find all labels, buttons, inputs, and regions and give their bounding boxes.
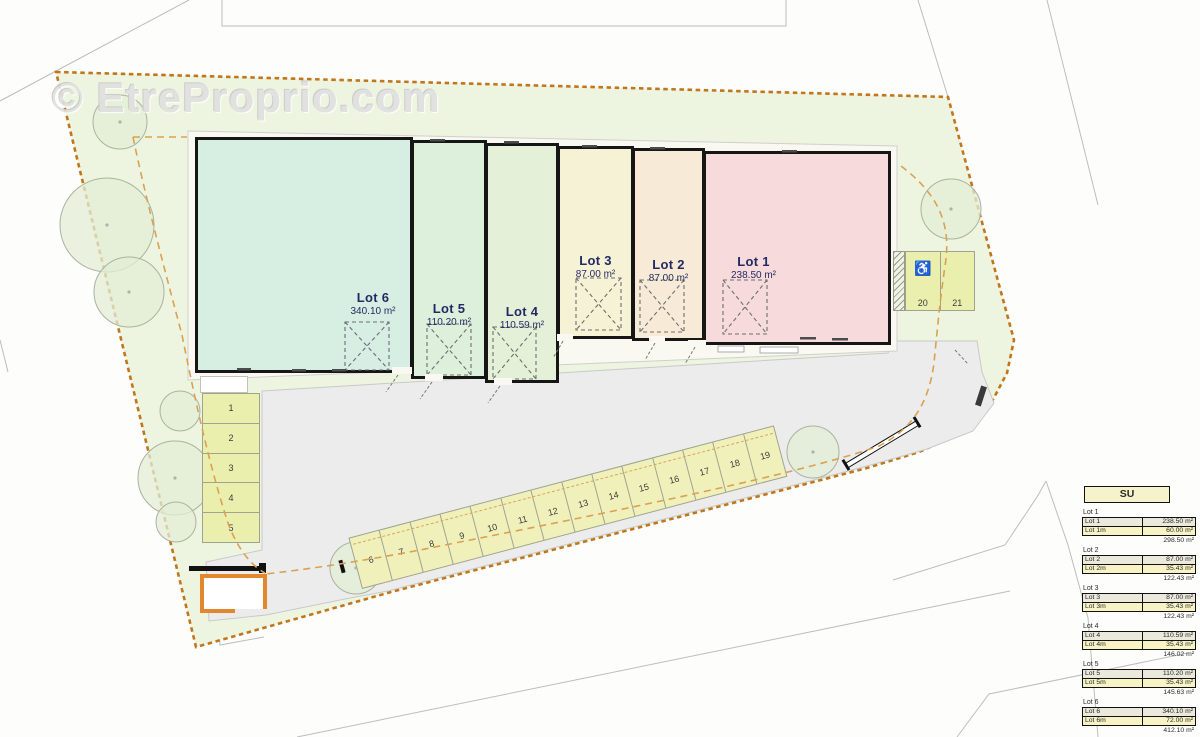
su-group-subtotal: 145.63 m²	[1082, 689, 1196, 697]
lot-void-box	[722, 279, 768, 335]
lot-2: Lot 2 87.00 m²	[632, 148, 705, 341]
lot-label: Lot 3	[560, 253, 631, 268]
su-row-value: 87.00 m²	[1143, 594, 1195, 602]
lot-void-box	[344, 321, 390, 371]
su-group: Lot 1Lot 1238.50 m²Lot 1m60.00 m²298.50 …	[1082, 509, 1196, 545]
su-row-value: 35.43 m²	[1143, 565, 1195, 573]
gate-post	[259, 563, 266, 573]
parking-space-5: 5	[203, 512, 259, 542]
su-table-title: SU	[1084, 486, 1170, 503]
su-row: Lot 387.00 m²	[1083, 594, 1195, 602]
su-group-table: Lot 287.00 m²Lot 2m35.43 m²	[1082, 555, 1196, 574]
su-row-value: 35.43 m²	[1143, 641, 1195, 649]
su-table-groups: Lot 1Lot 1238.50 m²Lot 1m60.00 m²298.50 …	[1082, 509, 1196, 735]
lot-void-box	[639, 279, 685, 333]
gate-bar	[189, 566, 265, 571]
lot-void-box	[426, 323, 472, 376]
su-row-name: Lot 5m	[1083, 679, 1143, 687]
lot-1: Lot 1 238.50 m²	[703, 151, 891, 345]
su-group-subtotal: 122.43 m²	[1082, 575, 1196, 583]
lot-label: Lot 2	[635, 257, 702, 272]
walkway-strip	[200, 376, 248, 393]
lot-void-box	[575, 277, 622, 331]
su-group-table: Lot 4110.59 m²Lot 4m35.43 m²	[1082, 631, 1196, 650]
su-row: Lot 1238.50 m²	[1083, 518, 1195, 526]
su-group-subtotal: 122.43 m²	[1082, 613, 1196, 621]
su-row-value: 72.00 m²	[1143, 717, 1195, 725]
su-row-name: Lot 2m	[1083, 565, 1143, 573]
su-table: SU Lot 1Lot 1238.50 m²Lot 1m60.00 m²298.…	[1082, 486, 1196, 737]
su-group-subtotal: 298.50 m²	[1082, 537, 1196, 545]
lot-area: 110.59 m²	[488, 320, 556, 331]
lot-area: 87.00 m²	[635, 273, 702, 284]
su-row: Lot 4m35.43 m²	[1083, 640, 1195, 649]
su-row-name: Lot 1	[1083, 518, 1143, 526]
bin-enclosure	[200, 574, 267, 609]
lot-4: Lot 4 110.59 m²	[485, 143, 559, 383]
su-row-name: Lot 4	[1083, 632, 1143, 640]
su-row: Lot 5110.20 m²	[1083, 670, 1195, 678]
su-row-value: 340.10 m²	[1143, 708, 1195, 716]
lot-label: Lot 4	[488, 304, 556, 319]
su-row-name: Lot 6m	[1083, 717, 1143, 725]
su-row: Lot 287.00 m²	[1083, 556, 1195, 564]
su-group-table: Lot 387.00 m²Lot 3m35.43 m²	[1082, 593, 1196, 612]
su-row-value: 110.59 m²	[1143, 632, 1195, 640]
parking-space-21: 21	[940, 252, 975, 310]
su-group-label: Lot 5	[1082, 661, 1196, 669]
su-group: Lot 6Lot 6340.10 m²Lot 6m72.00 m²412.10 …	[1082, 699, 1196, 735]
su-group: Lot 2Lot 287.00 m²Lot 2m35.43 m²122.43 m…	[1082, 547, 1196, 583]
lot-5: Lot 5 110.20 m²	[411, 140, 487, 379]
su-row-value: 87.00 m²	[1143, 556, 1195, 564]
hatched-strip	[893, 251, 905, 311]
su-row: Lot 1m60.00 m²	[1083, 526, 1195, 535]
lot-area: 110.20 m²	[414, 317, 484, 328]
su-row-name: Lot 3m	[1083, 603, 1143, 611]
su-row-value: 35.43 m²	[1143, 679, 1195, 687]
parking-space-1: 1	[203, 394, 259, 423]
lot-3: Lot 3 87.00 m²	[557, 146, 634, 339]
su-group-subtotal: 412.10 m²	[1082, 727, 1196, 735]
lot-void-box	[492, 326, 537, 380]
su-row-value: 35.43 m²	[1143, 603, 1195, 611]
su-row: Lot 3m35.43 m²	[1083, 602, 1195, 611]
su-group: Lot 4Lot 4110.59 m²Lot 4m35.43 m²146.02 …	[1082, 623, 1196, 659]
parking-left-column: 12345	[202, 393, 260, 543]
su-row-value: 110.20 m²	[1143, 670, 1195, 678]
su-row-name: Lot 2	[1083, 556, 1143, 564]
parking-space-2: 2	[203, 423, 259, 453]
parking-space-4: 4	[203, 482, 259, 512]
su-row-value: 238.50 m²	[1143, 518, 1195, 526]
su-row-name: Lot 1m	[1083, 527, 1143, 535]
su-group-subtotal: 146.02 m²	[1082, 651, 1196, 659]
su-group-table: Lot 5110.20 m²Lot 5m35.43 m²	[1082, 669, 1196, 688]
lot-6: Lot 6 340.10 m²	[195, 137, 413, 373]
su-row-name: Lot 5	[1083, 670, 1143, 678]
su-group: Lot 5Lot 5110.20 m²Lot 5m35.43 m²145.63 …	[1082, 661, 1196, 697]
su-row-value: 60.00 m²	[1143, 527, 1195, 535]
su-row: Lot 4110.59 m²	[1083, 632, 1195, 640]
su-group-table: Lot 1238.50 m²Lot 1m60.00 m²	[1082, 517, 1196, 536]
handicap-icon: ♿	[906, 260, 940, 277]
parking-space-number: 21	[941, 298, 975, 308]
lot-label: Lot 1	[706, 254, 801, 269]
su-row-name: Lot 3	[1083, 594, 1143, 602]
su-group-label: Lot 4	[1082, 623, 1196, 631]
su-row: Lot 6m72.00 m²	[1083, 716, 1195, 725]
su-row-name: Lot 4m	[1083, 641, 1143, 649]
su-group-label: Lot 1	[1082, 509, 1196, 517]
parking-space-3: 3	[203, 453, 259, 483]
site-plan-drawing	[0, 0, 1200, 737]
su-row: Lot 2m35.43 m²	[1083, 564, 1195, 573]
su-group-label: Lot 6	[1082, 699, 1196, 707]
su-row: Lot 5m35.43 m²	[1083, 678, 1195, 687]
su-group-table: Lot 6340.10 m²Lot 6m72.00 m²	[1082, 707, 1196, 726]
su-group: Lot 3Lot 387.00 m²Lot 3m35.43 m²122.43 m…	[1082, 585, 1196, 621]
parking-right-pair: ♿2021	[905, 251, 975, 311]
lot-area: 238.50 m²	[706, 270, 801, 281]
lot-label: Lot 5	[414, 301, 484, 316]
parking-space-20: ♿20	[906, 252, 940, 310]
su-group-label: Lot 3	[1082, 585, 1196, 593]
lot-area: 87.00 m²	[560, 269, 631, 280]
parking-space-number: 20	[906, 298, 940, 308]
su-row: Lot 6340.10 m²	[1083, 708, 1195, 716]
su-row-name: Lot 6	[1083, 708, 1143, 716]
su-group-label: Lot 2	[1082, 547, 1196, 555]
site-plan-page: © EtreProprio.com Lot 6 340.10 m² Lot 5 …	[0, 0, 1200, 737]
